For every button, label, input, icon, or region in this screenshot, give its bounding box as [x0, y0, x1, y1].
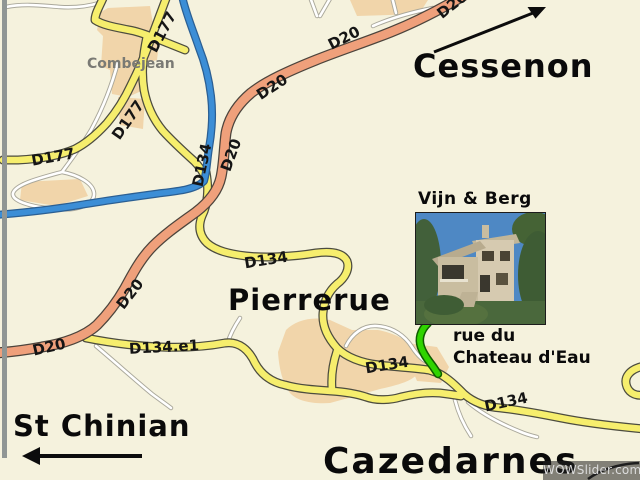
road-label-d134.e1: D134.e1 [129, 336, 200, 358]
label-vijn-and-berg: Vijn & Berg [418, 189, 532, 209]
label-rue-du-chateau-deau: rue du Chateau d'Eau [453, 325, 591, 369]
house-photo [415, 212, 546, 325]
st-chinian-arrow-icon [22, 447, 142, 465]
label-combejean: Combejean [87, 56, 175, 72]
house-photo-graphic [416, 213, 545, 324]
map-canvas: Combejean Cessenon Pierrerue St Chinian … [0, 0, 640, 480]
map-border-bar [2, 0, 7, 458]
label-st-chinian: St Chinian [13, 409, 191, 443]
label-cazedarnes: Cazedarnes [323, 441, 578, 480]
watermark-wowslider[interactable]: WOWSlider.com [543, 461, 640, 480]
label-pierrerue: Pierrerue [228, 283, 391, 317]
label-cessenon: Cessenon [413, 47, 594, 85]
watermark-text: WOWSlider.com [543, 463, 640, 477]
